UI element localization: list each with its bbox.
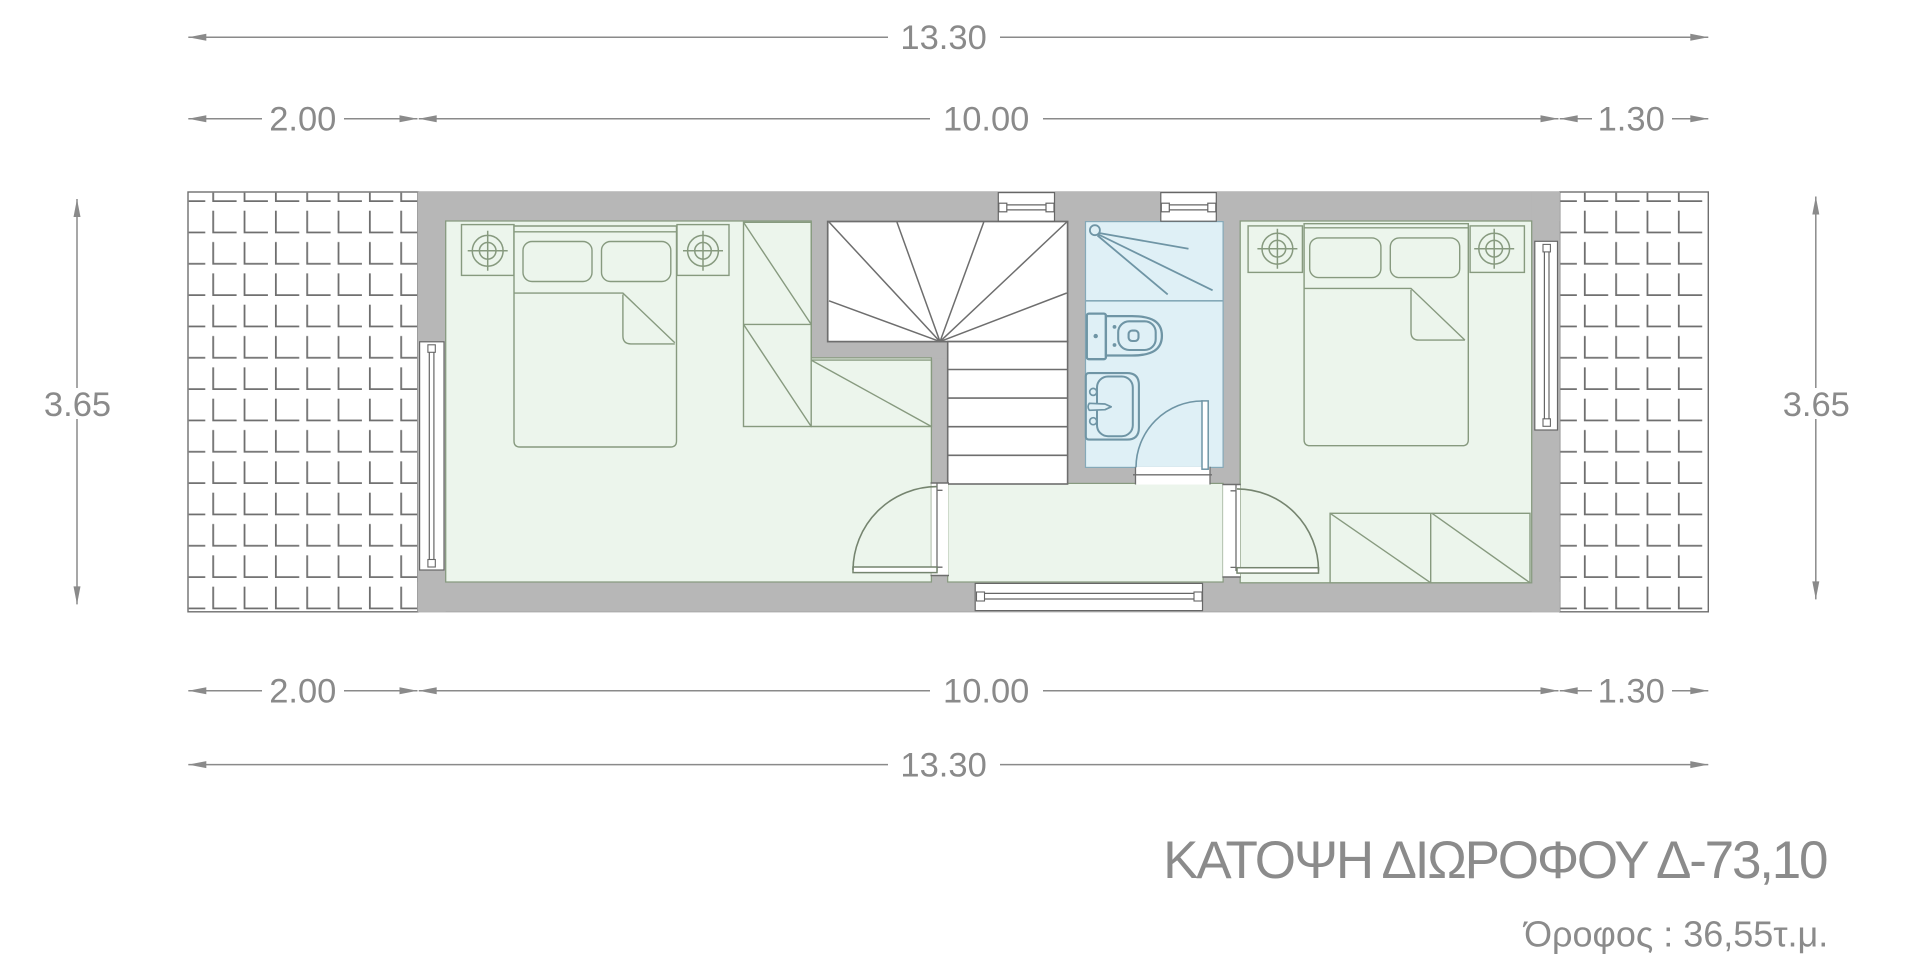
svg-text:2.00: 2.00 (269, 673, 336, 711)
svg-text:2.00: 2.00 (269, 101, 336, 139)
svg-text:1.30: 1.30 (1598, 101, 1665, 139)
svg-text:13.30: 13.30 (900, 747, 986, 785)
svg-text:1.30: 1.30 (1598, 673, 1665, 711)
svg-text:Όροφος : 36,55τ.μ.: Όροφος : 36,55τ.μ. (1522, 914, 1828, 955)
svg-text:10.00: 10.00 (943, 673, 1029, 711)
svg-text:ΚΑΤΟΨΗ ΔΙΩΡΟΦΟΥ Δ-73,10: ΚΑΤΟΨΗ ΔΙΩΡΟΦΟΥ Δ-73,10 (1163, 831, 1827, 890)
svg-text:13.30: 13.30 (900, 19, 986, 57)
svg-text:3.65: 3.65 (1783, 386, 1850, 424)
svg-text:3.65: 3.65 (44, 386, 111, 424)
svg-text:10.00: 10.00 (943, 101, 1029, 139)
